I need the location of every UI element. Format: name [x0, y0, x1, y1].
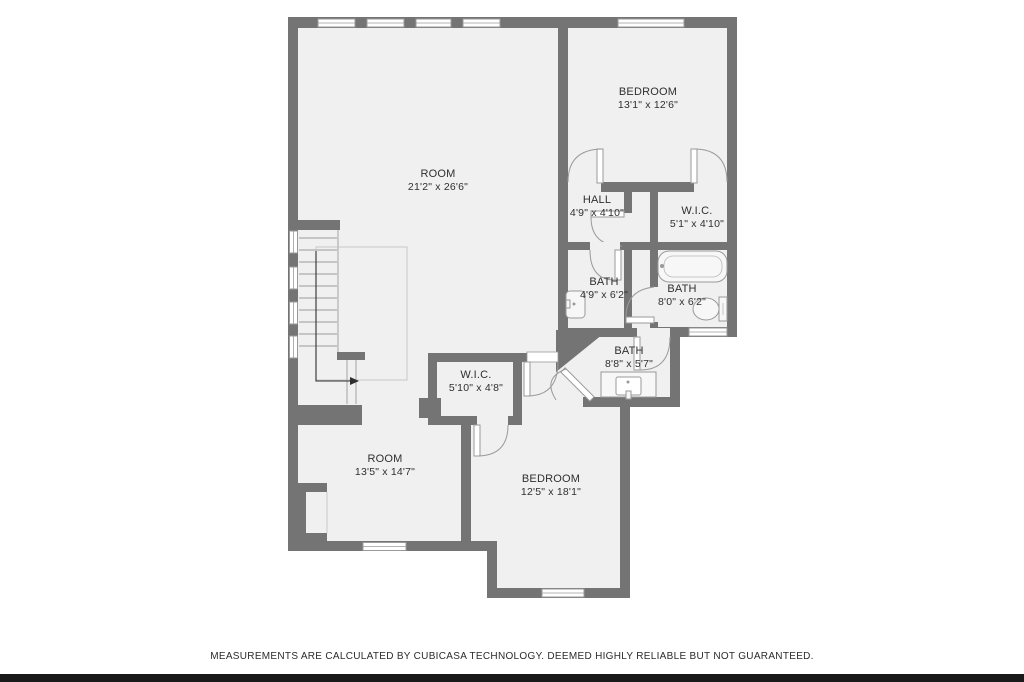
- room-dims: 21'2" x 26'6": [408, 181, 468, 194]
- room-label-room-bottom: ROOM 13'5" x 14'7": [355, 453, 415, 479]
- room-name: BEDROOM: [618, 86, 678, 99]
- room-name: BATH: [658, 283, 706, 296]
- room-label-wic-center: W.I.C. 5'10" x 4'8": [449, 369, 503, 395]
- room-dims: 8'8" x 5'7": [605, 358, 653, 371]
- vanity-sink-icon: [601, 372, 656, 399]
- room-dims: 12'5" x 18'1": [521, 486, 581, 499]
- room-label-wic-small: W.I.C. 5'1" x 4'10": [670, 205, 724, 231]
- room-label-bedroom-top: BEDROOM 13'1" x 12'6": [618, 86, 678, 112]
- room-dims: 5'10" x 4'8": [449, 382, 503, 395]
- room-name: ROOM: [408, 168, 468, 181]
- room-label-bath-diagonal: BATH 8'8" x 5'7": [605, 345, 653, 371]
- room-name: HALL: [570, 194, 624, 207]
- room-label-hall: HALL 4'9" x 4'10": [570, 194, 624, 220]
- floor-plan-page: ROOM 21'2" x 26'6" BEDROOM 13'1" x 12'6"…: [0, 0, 1024, 682]
- room-dims: 5'1" x 4'10": [670, 218, 724, 231]
- room-name: BATH: [580, 276, 628, 289]
- footer-bar: [0, 674, 1024, 682]
- room-label-room-top: ROOM 21'2" x 26'6": [408, 168, 468, 194]
- room-dims: 13'1" x 12'6": [618, 99, 678, 112]
- room-name: W.I.C.: [449, 369, 503, 382]
- room-name: W.I.C.: [670, 205, 724, 218]
- room-label-bath-right: BATH 8'0" x 6'2": [658, 283, 706, 309]
- measurement-disclaimer: MEASUREMENTS ARE CALCULATED BY CUBICASA …: [0, 651, 1024, 662]
- room-name: BEDROOM: [521, 473, 581, 486]
- floor-plan-canvas: [0, 0, 1024, 682]
- room-name: ROOM: [355, 453, 415, 466]
- room-dims: 4'9" x 4'10": [570, 207, 624, 220]
- room-label-bedroom-bottom: BEDROOM 12'5" x 18'1": [521, 473, 581, 499]
- bathtub-icon: [658, 251, 727, 282]
- room-dims: 4'9" x 6'2": [580, 289, 628, 302]
- room-dims: 8'0" x 6'2": [658, 296, 706, 309]
- room-label-bath-left: BATH 4'9" x 6'2": [580, 276, 628, 302]
- room-dims: 13'5" x 14'7": [355, 466, 415, 479]
- room-name: BATH: [605, 345, 653, 358]
